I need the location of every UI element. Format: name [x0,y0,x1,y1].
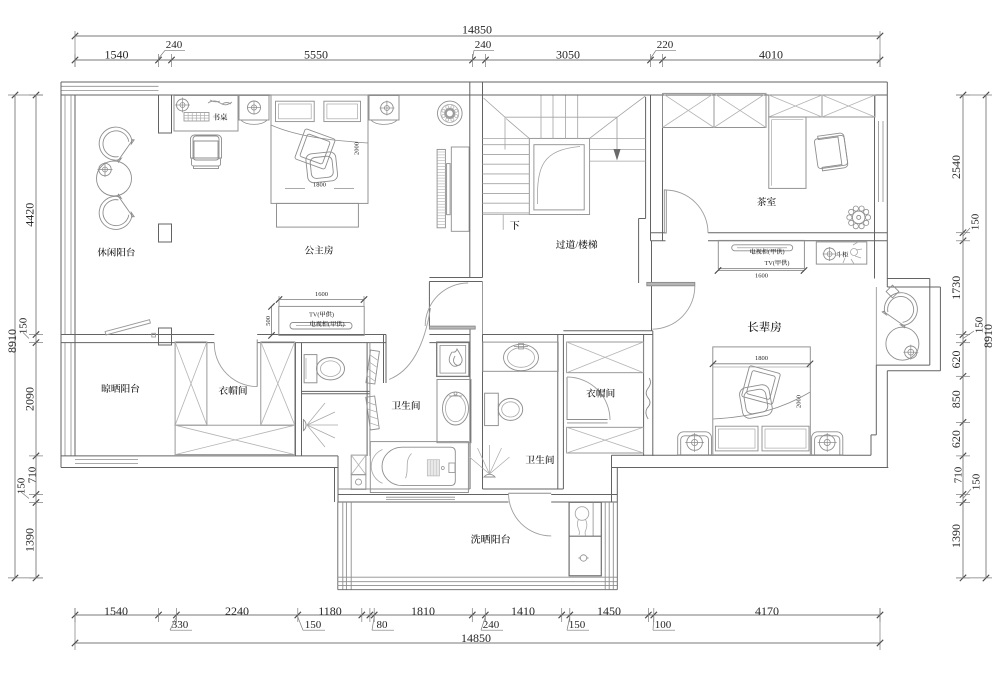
svg-text:1390: 1390 [23,528,37,552]
svg-text:1800: 1800 [313,182,326,189]
svg-text:500: 500 [265,316,272,326]
svg-text:1810: 1810 [411,604,435,618]
svg-text:1410: 1410 [511,604,535,618]
svg-text:150: 150 [18,317,30,334]
svg-text:4170: 4170 [755,604,779,618]
svg-text:150: 150 [971,473,983,490]
svg-text:1390: 1390 [949,524,963,548]
svg-text:620: 620 [949,430,963,448]
svg-text:): ) [332,311,334,318]
svg-text:100: 100 [655,619,672,631]
svg-text:4420: 4420 [23,203,37,227]
svg-text:1600: 1600 [755,273,768,280]
svg-text:(: ( [317,311,319,318]
svg-text:): ) [783,249,785,256]
svg-text:1180: 1180 [318,604,342,618]
svg-text:80: 80 [377,619,389,631]
svg-text:150: 150 [16,477,28,494]
svg-text:240: 240 [483,619,500,631]
svg-text:(: ( [773,260,775,267]
svg-text:850: 850 [949,390,963,408]
svg-text:4010: 4010 [759,47,783,61]
svg-text:2240: 2240 [225,604,249,618]
svg-text:): ) [343,321,345,328]
svg-text:2090: 2090 [23,387,37,411]
svg-text:220: 220 [657,39,674,51]
svg-text:150: 150 [569,619,586,631]
svg-text:240: 240 [475,39,492,51]
svg-text:620: 620 [949,351,963,369]
svg-text:14850: 14850 [461,631,491,645]
svg-text:150: 150 [305,619,322,631]
svg-text:150: 150 [970,213,982,230]
svg-text:14850: 14850 [462,23,492,37]
svg-text:(: ( [768,249,770,256]
svg-text:1540: 1540 [105,47,129,61]
svg-text:8910: 8910 [981,324,995,348]
svg-text:1450: 1450 [597,604,621,618]
svg-text:1540: 1540 [104,604,128,618]
svg-text:710: 710 [953,466,965,483]
svg-text:/: / [575,240,578,251]
svg-text:240: 240 [166,39,183,51]
svg-text:): ) [787,260,789,267]
svg-text:3050: 3050 [556,47,580,61]
svg-text:1730: 1730 [949,276,963,300]
svg-text:710: 710 [27,466,39,483]
svg-text:(: ( [328,321,330,328]
svg-text:1800: 1800 [755,355,768,362]
svg-text:1600: 1600 [315,291,328,298]
svg-text:5550: 5550 [304,47,328,61]
svg-text:2540: 2540 [949,155,963,179]
svg-text:2000: 2000 [354,142,361,155]
